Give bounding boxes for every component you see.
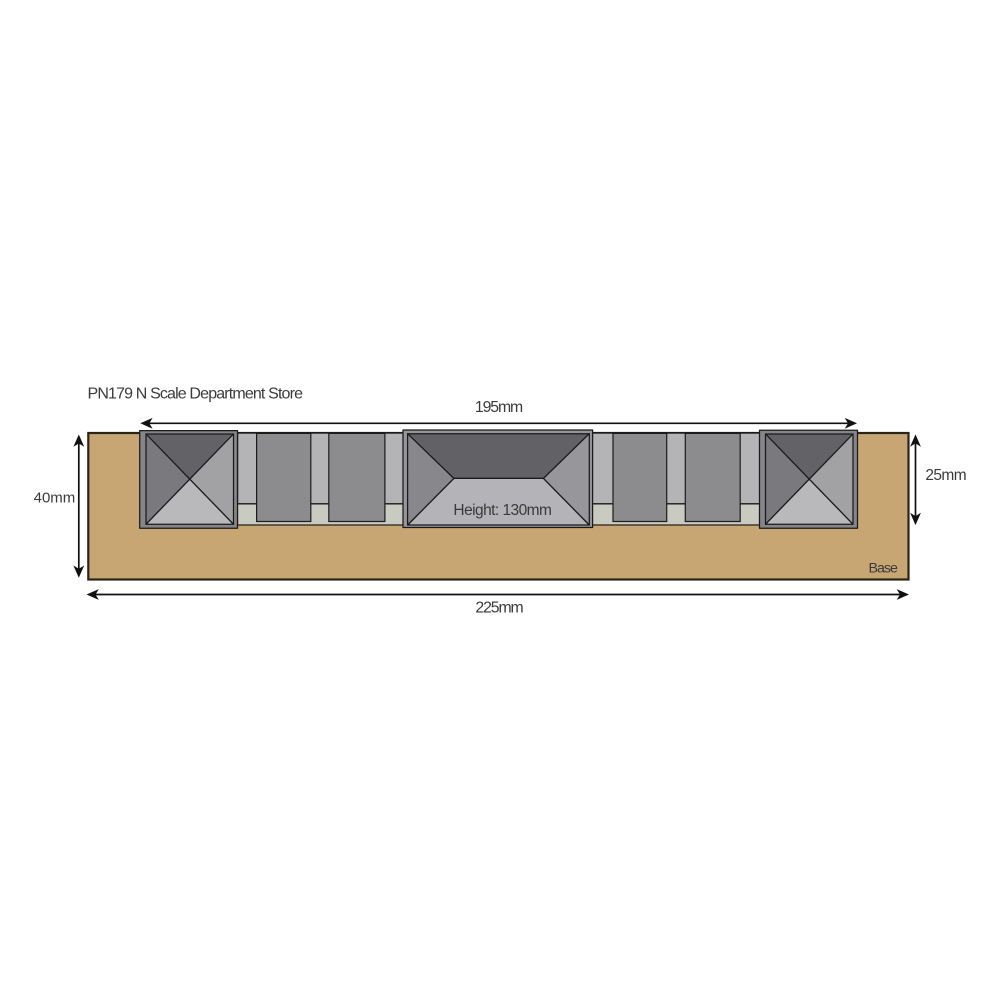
svg-text:40mm: 40mm <box>34 489 76 506</box>
svg-text:195mm: 195mm <box>475 399 523 416</box>
svg-text:Height: 130mm: Height: 130mm <box>453 502 551 519</box>
svg-text:225mm: 225mm <box>475 599 523 616</box>
svg-text:25mm: 25mm <box>925 467 966 484</box>
svg-text:Base: Base <box>869 561 898 577</box>
svg-text:PN179 N Scale Department Store: PN179 N Scale Department Store <box>88 386 304 403</box>
